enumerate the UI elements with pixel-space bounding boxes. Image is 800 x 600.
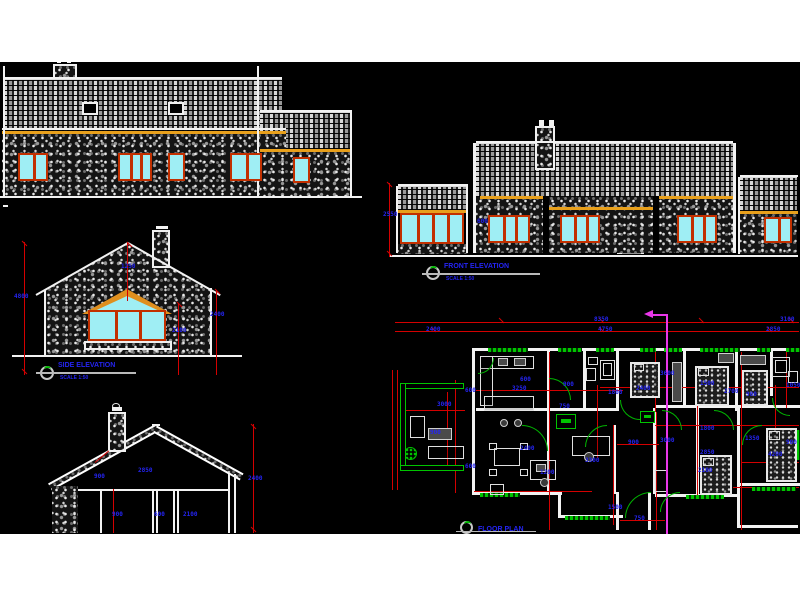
front-elevation-scale: SCALE 1:50 <box>446 276 474 282</box>
furniture-outline <box>586 368 596 381</box>
cad-viewport[interactable]: SIDE ELEVATION SCALE 1:50 FRONT ELEVATIO… <box>0 0 800 600</box>
drawing-line <box>740 525 798 528</box>
furniture-gray <box>672 362 682 402</box>
window <box>118 153 152 181</box>
dimension-text: 3100 <box>780 317 794 323</box>
dimension-text: 2100 <box>172 328 186 334</box>
dimension-text: 2850 <box>700 450 714 456</box>
drawing-line <box>466 186 468 253</box>
dimension-text: 2400 <box>210 312 224 318</box>
dimension-text: 600 <box>465 388 476 394</box>
drawing-line <box>476 141 733 143</box>
page-margin-bottom <box>0 534 800 600</box>
stone-wall <box>397 244 468 254</box>
recess-slot <box>653 196 659 254</box>
dimension-text: 3250 <box>512 386 526 392</box>
dimension-text: 1250 <box>121 264 135 270</box>
drawing-line <box>100 491 102 533</box>
dimension-text: 900 <box>94 474 105 480</box>
dimension-line <box>24 242 25 375</box>
dimension-text: 1350 <box>745 436 759 442</box>
section-line <box>652 314 666 316</box>
side-elevation-scale: SCALE 1:50 <box>60 375 88 381</box>
fascia-band <box>658 196 733 199</box>
dimension-text: 2850 <box>138 468 152 474</box>
drawing-line <box>12 355 242 357</box>
dimension-line <box>178 303 179 375</box>
furniture-outline <box>698 368 709 376</box>
dimension-text: 1500 <box>700 381 714 387</box>
furniture-round <box>500 419 508 427</box>
furniture-outline <box>490 484 504 495</box>
roof-tiles <box>476 143 733 197</box>
drawing-line <box>616 351 619 411</box>
bed <box>742 370 768 406</box>
conservatory-wall <box>400 465 464 471</box>
conservatory-wall <box>400 383 464 389</box>
drawing-world: SIDE ELEVATION SCALE 1:50 FRONT ELEVATIO… <box>0 0 800 600</box>
window <box>560 215 600 243</box>
furniture-gray <box>514 358 526 366</box>
dimension-text: 8350 <box>594 317 608 323</box>
stone-wall <box>52 486 78 533</box>
title-marker-plan <box>460 521 473 534</box>
dimension-text: 900 <box>430 430 441 436</box>
dimension-text: 900 <box>786 440 797 446</box>
furniture-outline <box>428 446 464 459</box>
furniture-outline <box>703 458 714 466</box>
vent-symbol <box>640 411 655 423</box>
furniture-outline <box>603 363 612 376</box>
drawing-line <box>735 351 738 411</box>
drawing-line <box>539 120 544 126</box>
page-margin-top <box>0 0 800 62</box>
window-hatch <box>786 348 800 352</box>
side-elevation-title: SIDE ELEVATION <box>58 362 115 369</box>
title-underline <box>36 372 136 374</box>
conservatory-wall <box>400 383 406 471</box>
section-roof-slope-right <box>153 426 243 481</box>
window-hatch <box>700 348 740 352</box>
window <box>230 153 262 181</box>
dimension-text: 4750 <box>598 327 612 333</box>
drawing-line <box>398 184 468 186</box>
drawing-line <box>234 474 236 533</box>
fascia-band <box>548 207 654 210</box>
dimension-text: 750 <box>559 404 570 410</box>
rooflight <box>82 102 98 115</box>
window-hatch <box>640 348 656 352</box>
dimension-line <box>397 370 398 490</box>
drawing-line <box>549 120 554 126</box>
dimension-text: 3000 <box>660 438 674 444</box>
vent-symbol <box>556 414 576 429</box>
recess-slot <box>543 196 549 254</box>
dimension-text: 1500 <box>608 505 622 511</box>
dimension-line <box>389 183 390 257</box>
drawing-line <box>173 491 175 533</box>
drawing-line <box>44 290 46 356</box>
section-roof-slope-left <box>48 424 159 490</box>
dimension-text: 4800 <box>14 294 28 300</box>
dimension-text: 2400 <box>520 446 534 452</box>
drawing-line <box>733 143 736 253</box>
window-hatch <box>596 348 614 352</box>
roof-tiles <box>740 177 797 211</box>
door-arc <box>620 400 640 420</box>
window <box>293 157 310 183</box>
dimension-text: 1200 <box>540 470 554 476</box>
window <box>764 217 792 243</box>
fascia-band <box>480 196 544 199</box>
title-underline <box>422 273 540 275</box>
window-hatch <box>686 495 724 499</box>
dimension-text: 2850 <box>766 327 780 333</box>
drawing-line <box>683 351 686 408</box>
dimension-line <box>455 380 456 493</box>
dimension-text: 2100 <box>698 468 712 474</box>
drawing-line <box>228 474 230 533</box>
rooflight <box>168 102 184 115</box>
dimension-text: 900 <box>628 440 639 446</box>
furniture-outline <box>494 448 520 466</box>
drawing-line <box>260 110 352 112</box>
dimension-text: 600 <box>154 512 165 518</box>
roof-tiles <box>4 79 282 131</box>
dimension-text: 2400 <box>248 476 262 482</box>
dimension-text: 900 <box>563 382 574 388</box>
dimension-text: 4200 <box>768 452 782 458</box>
furniture-outline <box>775 360 787 373</box>
furniture-outline <box>634 364 644 371</box>
furniture-outline <box>769 431 780 440</box>
dimension-text: 2100 <box>183 512 197 518</box>
dimension-text: 3300 <box>585 458 599 464</box>
window-hatch <box>558 348 582 352</box>
fascia-band <box>740 211 798 214</box>
furniture-outline <box>489 443 497 450</box>
floor-plan-title: FLOOR PLAN <box>478 526 524 533</box>
drawing-line <box>210 288 212 356</box>
front-elevation-title: FRONT ELEVATION <box>444 263 509 270</box>
chimney <box>84 341 172 350</box>
dimension-text: 2550 <box>383 212 397 218</box>
dimension-text: 3600 <box>660 371 674 377</box>
dimension-text: 1050 <box>786 383 800 389</box>
drawing-line <box>3 205 8 207</box>
drawing-line <box>156 226 168 229</box>
dimension-text: 900 <box>746 392 757 398</box>
dimension-text: 1800 <box>700 426 714 432</box>
dimension-line <box>395 331 799 332</box>
roof-tiles <box>398 186 468 210</box>
dimension-text: 600 <box>520 377 531 383</box>
furniture-outline <box>489 469 497 476</box>
dimension-text: 600 <box>477 219 488 225</box>
window-hatch <box>565 516 610 520</box>
furniture-gray <box>740 355 766 365</box>
dimension-text: 2700 <box>724 389 738 395</box>
furniture-outline <box>520 469 528 476</box>
fascia-band <box>260 149 352 152</box>
door-arc <box>662 410 682 430</box>
furniture-outline <box>484 396 534 411</box>
drawing-line <box>472 348 475 494</box>
drawing-line <box>3 66 5 196</box>
drawing-line <box>0 196 362 198</box>
window <box>677 215 717 243</box>
drawing-line <box>350 110 352 196</box>
door-arc <box>714 410 734 430</box>
chimney <box>108 412 126 452</box>
fascia-band <box>2 131 286 134</box>
dimension-line <box>216 290 217 375</box>
dimension-text: 750 <box>634 516 645 522</box>
drawing-line <box>396 186 398 253</box>
dimension-line <box>405 410 465 411</box>
drawing-line <box>390 255 798 257</box>
drawing-line <box>473 143 476 253</box>
window-hatch <box>757 348 771 352</box>
furniture-round <box>514 419 522 427</box>
window <box>18 153 48 181</box>
drawing-line <box>737 408 740 528</box>
drawing-line <box>4 77 282 79</box>
furniture-round <box>540 478 549 487</box>
dimension-text: 2400 <box>636 386 650 392</box>
window <box>168 153 185 181</box>
window-hatch <box>488 348 528 352</box>
furniture-outline <box>410 416 425 438</box>
drawing-line <box>738 177 740 254</box>
dimension-text: 1800 <box>608 390 622 396</box>
drawing-line <box>112 407 122 411</box>
drawing-line <box>2 128 286 130</box>
dimension-line <box>392 370 393 490</box>
chimney <box>535 126 555 170</box>
drawing-line <box>740 483 800 486</box>
dimension-text: 3000 <box>437 402 451 408</box>
furniture-outline <box>588 357 598 365</box>
furniture-gray <box>718 353 734 363</box>
drawing-line <box>616 492 619 530</box>
dimension-line <box>127 243 128 301</box>
drawing-line <box>177 491 179 533</box>
furniture-gray <box>498 358 508 366</box>
dimension-text: 2400 <box>426 327 440 333</box>
dimension-text: 900 <box>112 512 123 518</box>
window-hatch <box>752 487 796 491</box>
drawing-line <box>152 424 160 426</box>
drawing-line <box>740 175 798 177</box>
door-arc <box>585 425 607 447</box>
dimension-text: 600 <box>465 464 476 470</box>
window <box>88 310 166 341</box>
window <box>400 213 464 244</box>
window <box>488 215 530 243</box>
